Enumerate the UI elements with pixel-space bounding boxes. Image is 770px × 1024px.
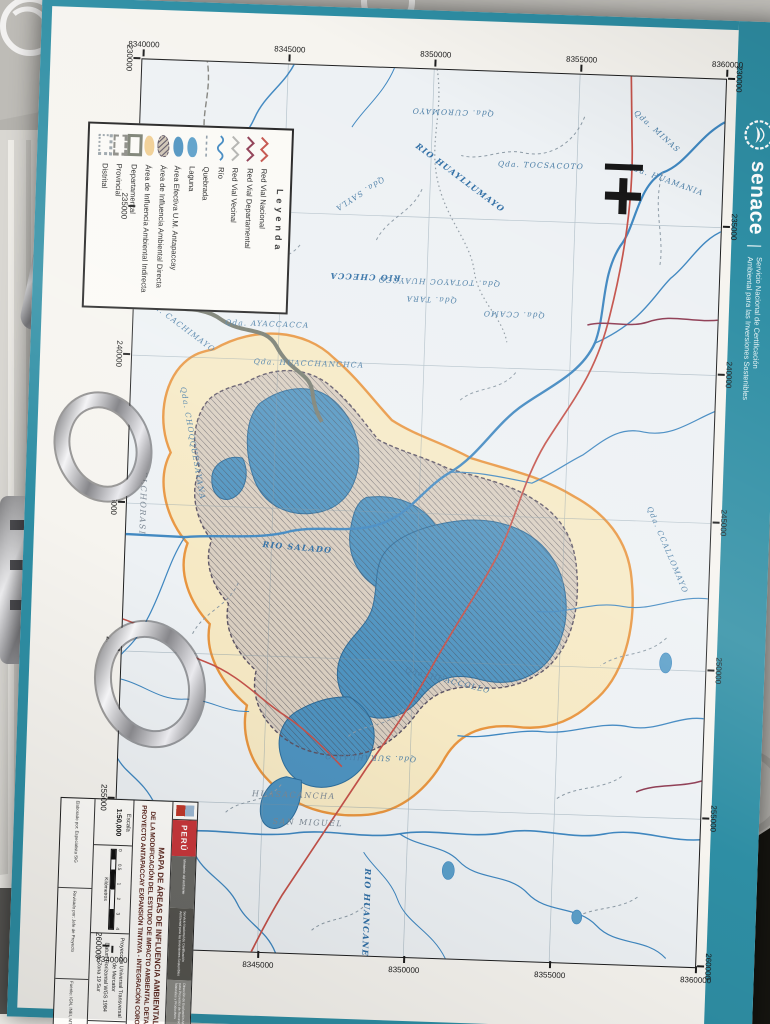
grid-tick [108,797,115,799]
projection-line: Proyección Universal Transversal de Merc… [107,936,124,1019]
scalebar-tick-label: 4 [115,927,120,930]
legend-symbol-blob-icon [186,134,200,160]
senace-tagline: Servicio Nacional de Certificación Ambie… [741,257,765,401]
legend-item-label: Red Vial Departamental [243,168,255,249]
legend-item-label: Área Efectiva U.M. Antapaccay [169,165,182,270]
scalebar-tick-label: 0.5 [117,864,122,871]
easting-label: 240000 [724,361,734,388]
legend-symbol-wave-icon [215,135,229,161]
legend-symbol-bracket-icon [99,131,113,157]
legend-symbol-dash-icon [200,134,214,160]
north-cross-icon [599,161,647,215]
legend-item-label: Distrital [100,163,110,189]
grid-tick [718,374,725,376]
easting-label: 245000 [719,509,729,536]
legend-symbol-bracket-icon [113,131,127,157]
brand-divider: | [747,244,764,248]
scalebar-tick-label: 0 [118,849,123,852]
scalebar-tick-label: 3 [116,912,121,915]
legend-item-label: Área de Influencia Ambiental Directa [154,165,167,288]
grid-tick [118,501,125,503]
legend-item-label: Red Vial Vecinal [229,167,240,222]
legend-title: Leyenda [271,137,287,305]
ministry-block: Ministerio del Ambiente [170,856,196,909]
grid-tick [128,205,135,207]
senace-wordmark: senace [744,160,770,235]
grid-tick [435,60,437,67]
northing-label: 8355000 [566,55,597,65]
grid-tick [728,78,735,80]
ministry-block: Servicio Nacional de Certificación Ambie… [167,908,193,981]
grid-tick [702,818,709,820]
map-page: senace | Servicio Nacional de Certificac… [7,0,770,1024]
grid-tick [723,226,730,228]
credit-cell: Fuente: IGN, INEI, MTC 2018 [52,979,89,1024]
grid-tick [549,961,551,968]
northing-label: 8350000 [420,50,451,60]
northing-label: 8340000 [128,39,159,49]
legend-symbol-bracket-icon [128,132,142,158]
grid-tick [143,49,145,56]
legend-box: Leyenda Red Vial NacionalRed Vial Depart… [82,121,294,314]
grid-tick [102,945,109,947]
northing-label: 8340000 [96,955,127,965]
easting-label: 235000 [729,214,739,241]
photo-of-binder-map: { "branding": { "wordmark": "senace", "d… [0,0,770,1024]
legend-symbol-zigzag-icon [229,135,243,161]
peru-coat-of-arms-icon [173,802,198,821]
northing-label: 8345000 [274,44,305,54]
grid-tick [133,57,140,59]
northing-label: 8360000 [712,60,743,70]
grid-tick [113,649,120,651]
legend-item-label: Laguna [187,166,197,192]
title-block: PERÚ Ministerio del Ambiente Servicio Na… [51,797,198,1024]
legend-item-label: Red Vial Nacional [258,169,269,230]
ministry-block: Dirección de Evaluación Ambiental para P… [165,980,191,1024]
legend-symbol-hatchblob-icon [157,133,171,159]
grid-tick [580,65,582,72]
grid-tick [111,946,113,953]
legend-symbol-blob-icon [142,132,156,158]
credit-cell: Revisado por: Jefe de Proyecto [55,888,92,979]
map-frame: Qda. CUROMAYOQda. TOCSACOTOQda. MINASQda… [110,58,727,968]
legend-item-label: Quebrada [201,166,211,200]
scalebar: 00.51234 Kilómetros [91,845,132,934]
easting-label: 255000 [708,805,718,832]
grid-tick [707,670,714,672]
senace-emblem-icon [742,117,770,152]
northing-label: 8345000 [242,960,273,970]
grid-tick [289,54,291,61]
northing-label: 8355000 [534,970,565,980]
legend-item-label: Área de Influencia Ambiental Indirecta [140,164,153,292]
northing-label: 8350000 [388,965,419,975]
legend-symbol-zigzag-icon [258,136,272,162]
grid-tick [697,965,704,967]
grid-tick [257,951,259,958]
scalebar-tick-label: 2 [116,898,121,901]
grid-tick [695,966,697,973]
legend-symbol-blob-icon [171,133,185,159]
credit-cell: Elaborado por: Especialista SIG [58,798,95,889]
legend-symbol-zigzag-icon [244,136,258,162]
easting-label: 250000 [713,657,723,684]
northing-label: 8360000 [680,975,711,985]
grid-tick [403,956,405,963]
legend-item-label: Río [216,167,225,179]
grid-tick [726,70,728,77]
scalebar-tick-label: 1 [117,883,122,886]
peru-label: PERÚ [172,820,197,857]
grid-tick [713,522,720,524]
grid-tick [123,353,130,355]
